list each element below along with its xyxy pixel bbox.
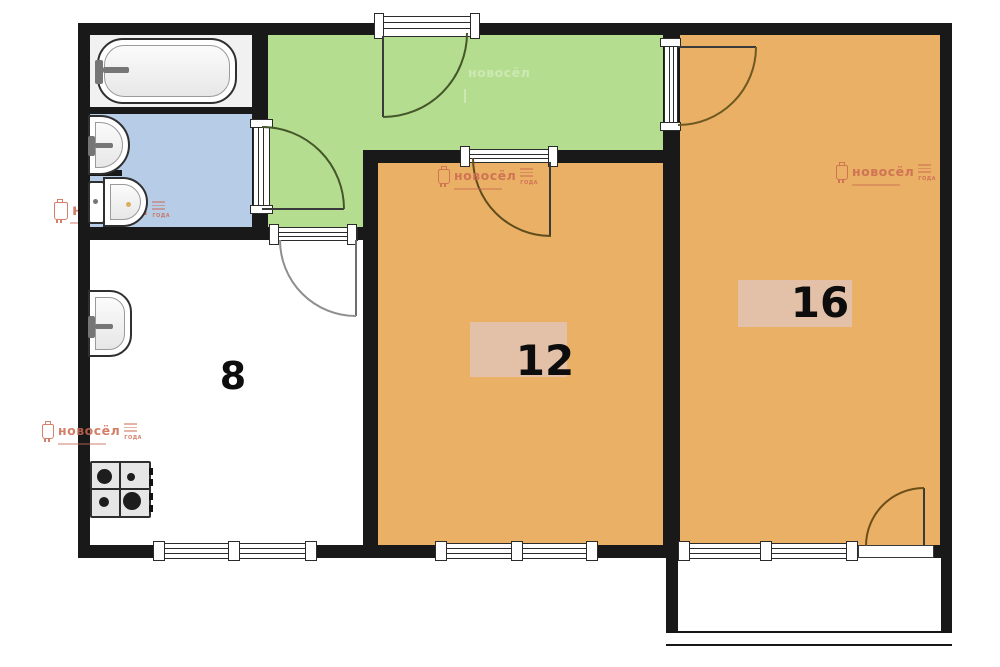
wall-kitchen-room12 xyxy=(363,150,378,545)
watermark-lines: ГОДА xyxy=(918,164,936,182)
watermark-badge: ГОДА xyxy=(918,176,936,182)
hallway-leg xyxy=(268,35,363,227)
watermark-lines: ГОДА xyxy=(152,201,170,219)
room12-window-cap xyxy=(511,541,523,561)
room-label-kitchen: 8 xyxy=(203,352,263,400)
kitchen-frame-cap xyxy=(347,224,357,245)
entrance-door-frame xyxy=(377,16,477,37)
stove-grid xyxy=(92,488,149,490)
room16-window-cap xyxy=(760,541,772,561)
kitchen-sink-faucet-spout xyxy=(95,324,113,329)
balcony xyxy=(678,558,941,632)
wall-bath-split xyxy=(90,107,252,114)
balcony-door-sill xyxy=(858,545,934,558)
room16-frame-cap xyxy=(660,122,681,131)
watermark-hallway-faint: новосёл xyxy=(468,64,530,103)
bathtub-faucet xyxy=(95,60,103,84)
novosel-logo-icon xyxy=(438,169,450,184)
stove-burner xyxy=(123,492,141,510)
watermark-lines: ГОДА xyxy=(124,423,142,441)
room-label-16: 16 xyxy=(780,279,860,327)
bathroom-sink-faucet xyxy=(88,136,95,156)
watermark-brand: новосёл xyxy=(468,64,530,81)
bathtub-faucet-spout xyxy=(103,67,129,73)
watermark-badge: ГОДА xyxy=(520,180,538,186)
stove-burner xyxy=(99,497,109,507)
stove-burner xyxy=(97,469,112,484)
novosel-logo-icon xyxy=(54,202,68,220)
room12-window-cap xyxy=(586,541,598,561)
stove-knob xyxy=(149,505,153,512)
bathroom-frame-cap xyxy=(250,205,273,214)
watermark-brand: новосёл xyxy=(58,422,120,439)
novosel-logo-icon xyxy=(836,165,848,180)
watermark-tick xyxy=(464,89,466,103)
wall-outer-right xyxy=(940,23,952,558)
watermark-lines: ГОДА xyxy=(520,168,538,186)
watermark-subtext xyxy=(58,443,106,445)
toilet-flush-knob xyxy=(93,199,98,204)
watermark-badge: ГОДА xyxy=(124,435,142,441)
watermark-kitchen: новосёл ГОДА xyxy=(42,422,142,445)
watermark-room16: новосёл ГОДА xyxy=(836,163,936,186)
watermark-room12: новосёл ГОДА xyxy=(438,167,538,190)
watermark-badge: ГОДА xyxy=(152,213,170,219)
room16-frame-cap xyxy=(660,38,681,47)
bathroom-door-frame xyxy=(253,122,270,214)
room16-door-frame xyxy=(664,41,678,131)
entrance-frame-cap xyxy=(374,13,384,39)
room12-frame-cap xyxy=(548,146,558,167)
stove-knob xyxy=(149,468,153,475)
stove-knob xyxy=(149,493,153,500)
room12-door-frame xyxy=(463,149,557,163)
kitchen-door-frame xyxy=(272,227,358,241)
room-label-12: 12 xyxy=(505,337,585,385)
novosel-logo-icon xyxy=(42,424,54,439)
bathroom-frame-cap xyxy=(250,119,273,128)
balcony-railing xyxy=(666,631,952,646)
room16-window-cap xyxy=(678,541,690,561)
room16-window-cap xyxy=(846,541,858,561)
toilet-marker-dot xyxy=(126,202,131,207)
kitchen-frame-cap xyxy=(269,224,279,245)
floor-plan: 8 12 16 новосёл ГОДА новосёл ГОДА новосё… xyxy=(0,0,1000,667)
room12-window-cap xyxy=(435,541,447,561)
kitchen-window-cap xyxy=(153,541,165,561)
bathroom-sink-faucet-spout xyxy=(95,143,113,148)
watermark-subtext xyxy=(852,184,900,186)
watermark-subtext xyxy=(454,188,502,190)
wall-outer-top xyxy=(78,23,952,35)
room12-frame-cap xyxy=(460,146,470,167)
stove-burner xyxy=(127,473,135,481)
kitchen-window-cap xyxy=(305,541,317,561)
entrance-frame-cap xyxy=(470,13,480,39)
kitchen-window-cap xyxy=(228,541,240,561)
stove-knob xyxy=(149,479,153,486)
watermark-brand: новосёл xyxy=(852,163,914,180)
kitchen-sink-faucet xyxy=(88,316,95,338)
watermark-brand: новосёл xyxy=(454,167,516,184)
